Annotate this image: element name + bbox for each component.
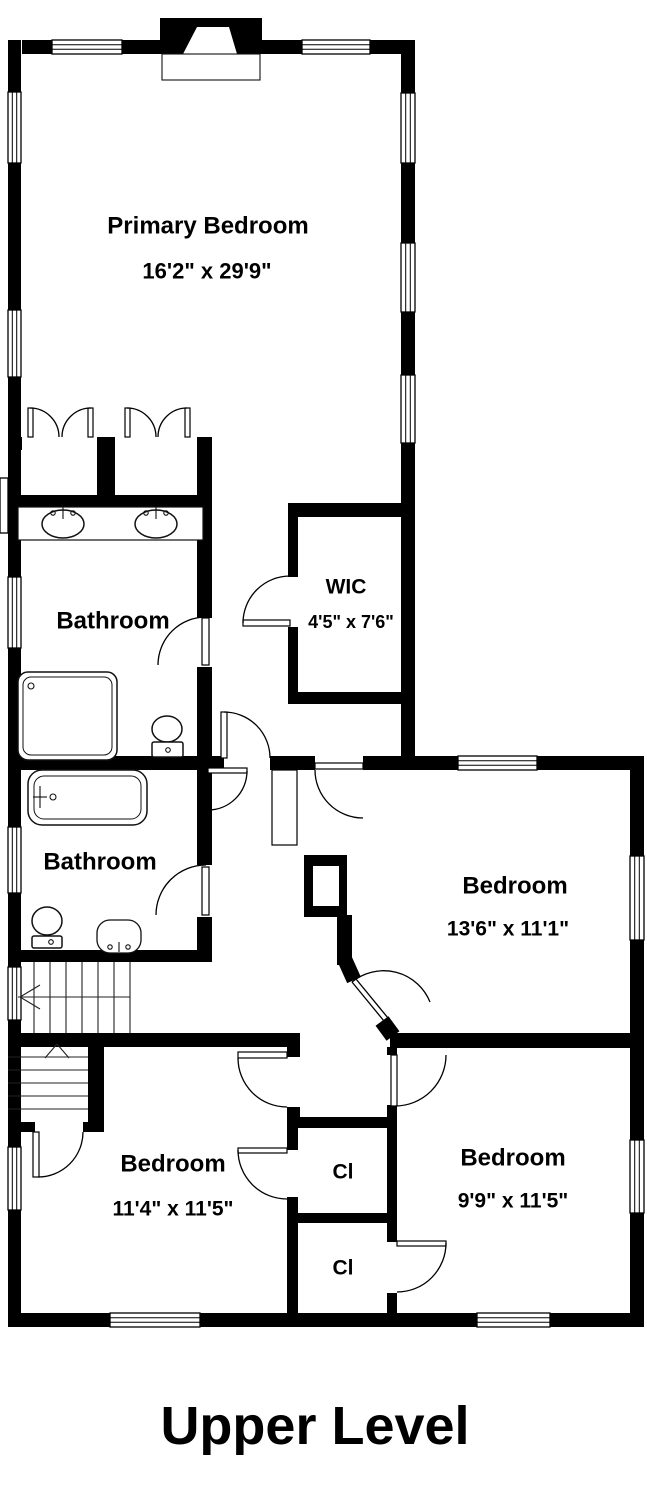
window bbox=[8, 1147, 21, 1210]
room-dims-primary-bedroom: 16'2" x 29'9" bbox=[142, 259, 271, 284]
floor-plan: Primary Bedroom 16'2" x 29'9" Bathroom W… bbox=[0, 0, 647, 1500]
room-label-bedroom-southwest: Bedroom bbox=[120, 1151, 225, 1178]
room-dims-bedroom-southeast: 9'9" x 11'5" bbox=[458, 1190, 569, 1213]
window bbox=[52, 40, 122, 54]
door-closet-south bbox=[397, 1241, 446, 1292]
closet-double-door bbox=[125, 408, 190, 437]
room-label-hall-bathroom: Bathroom bbox=[43, 849, 156, 876]
window bbox=[401, 93, 415, 163]
shaft-box bbox=[304, 855, 347, 917]
room-label-primary-bathroom: Bathroom bbox=[56, 608, 169, 635]
window bbox=[630, 1140, 644, 1213]
bathtub bbox=[28, 770, 147, 825]
sink bbox=[97, 920, 141, 953]
window-ledge bbox=[0, 478, 8, 533]
window bbox=[401, 375, 415, 443]
fireplace-chimney bbox=[160, 18, 262, 80]
door-attic-stair bbox=[33, 1132, 83, 1177]
window bbox=[8, 310, 21, 377]
shower bbox=[18, 672, 117, 760]
room-label-bedroom-east: Bedroom bbox=[462, 873, 567, 900]
fixtures bbox=[18, 507, 203, 953]
room-dims-bedroom-east: 13'6" x 11'1" bbox=[447, 918, 569, 941]
door-bedroom-southeast bbox=[391, 1055, 446, 1106]
room-label-closet-north: Cl bbox=[333, 1161, 354, 1184]
toilet bbox=[32, 907, 62, 948]
open-door-leaf bbox=[272, 770, 297, 845]
door-landing bbox=[208, 768, 247, 810]
door-diagonal bbox=[352, 971, 430, 1021]
room-label-wic: WIC bbox=[326, 576, 367, 599]
room-label-bedroom-southeast: Bedroom bbox=[460, 1145, 565, 1172]
window bbox=[8, 92, 21, 163]
door-wic bbox=[243, 576, 290, 626]
window bbox=[8, 967, 21, 1020]
window bbox=[110, 1313, 200, 1327]
window bbox=[630, 856, 644, 940]
door-bedroom-southwest bbox=[238, 1052, 287, 1107]
door-bedroom-east bbox=[315, 763, 363, 818]
closet-double-door bbox=[28, 408, 93, 437]
window bbox=[477, 1313, 550, 1327]
room-dims-wic: 4'5" x 7'6" bbox=[308, 612, 394, 632]
window bbox=[302, 40, 370, 54]
room-dims-bedroom-southwest: 11'4" x 11'5" bbox=[112, 1198, 233, 1221]
page-title: Upper Level bbox=[160, 1396, 469, 1456]
window bbox=[458, 756, 537, 770]
window bbox=[8, 577, 21, 648]
door-primary-suite bbox=[221, 712, 270, 758]
room-label-closet-south: Cl bbox=[333, 1257, 354, 1280]
window bbox=[8, 827, 21, 893]
floor-plan-page: Primary Bedroom 16'2" x 29'9" Bathroom W… bbox=[0, 0, 647, 1500]
window bbox=[401, 243, 415, 312]
door-hall-bathroom bbox=[156, 865, 209, 915]
door-closet-north bbox=[238, 1148, 287, 1199]
room-label-primary-bedroom: Primary Bedroom bbox=[107, 213, 308, 240]
toilet bbox=[152, 716, 183, 757]
vanity-double-sink bbox=[18, 507, 203, 540]
staircase-main bbox=[18, 962, 130, 1033]
